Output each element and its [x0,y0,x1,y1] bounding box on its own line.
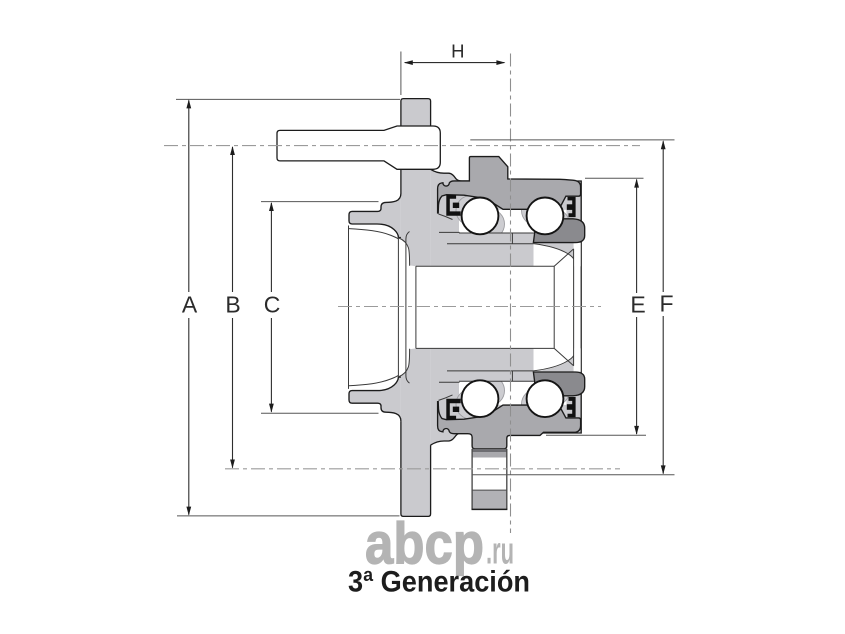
svg-text:A: A [182,292,198,318]
svg-text:3ª Generación: 3ª Generación [348,566,530,599]
svg-text:F: F [659,291,673,317]
svg-text:B: B [225,292,240,318]
svg-text:C: C [264,292,281,318]
svg-text:H: H [451,41,464,62]
svg-text:E: E [630,292,645,318]
